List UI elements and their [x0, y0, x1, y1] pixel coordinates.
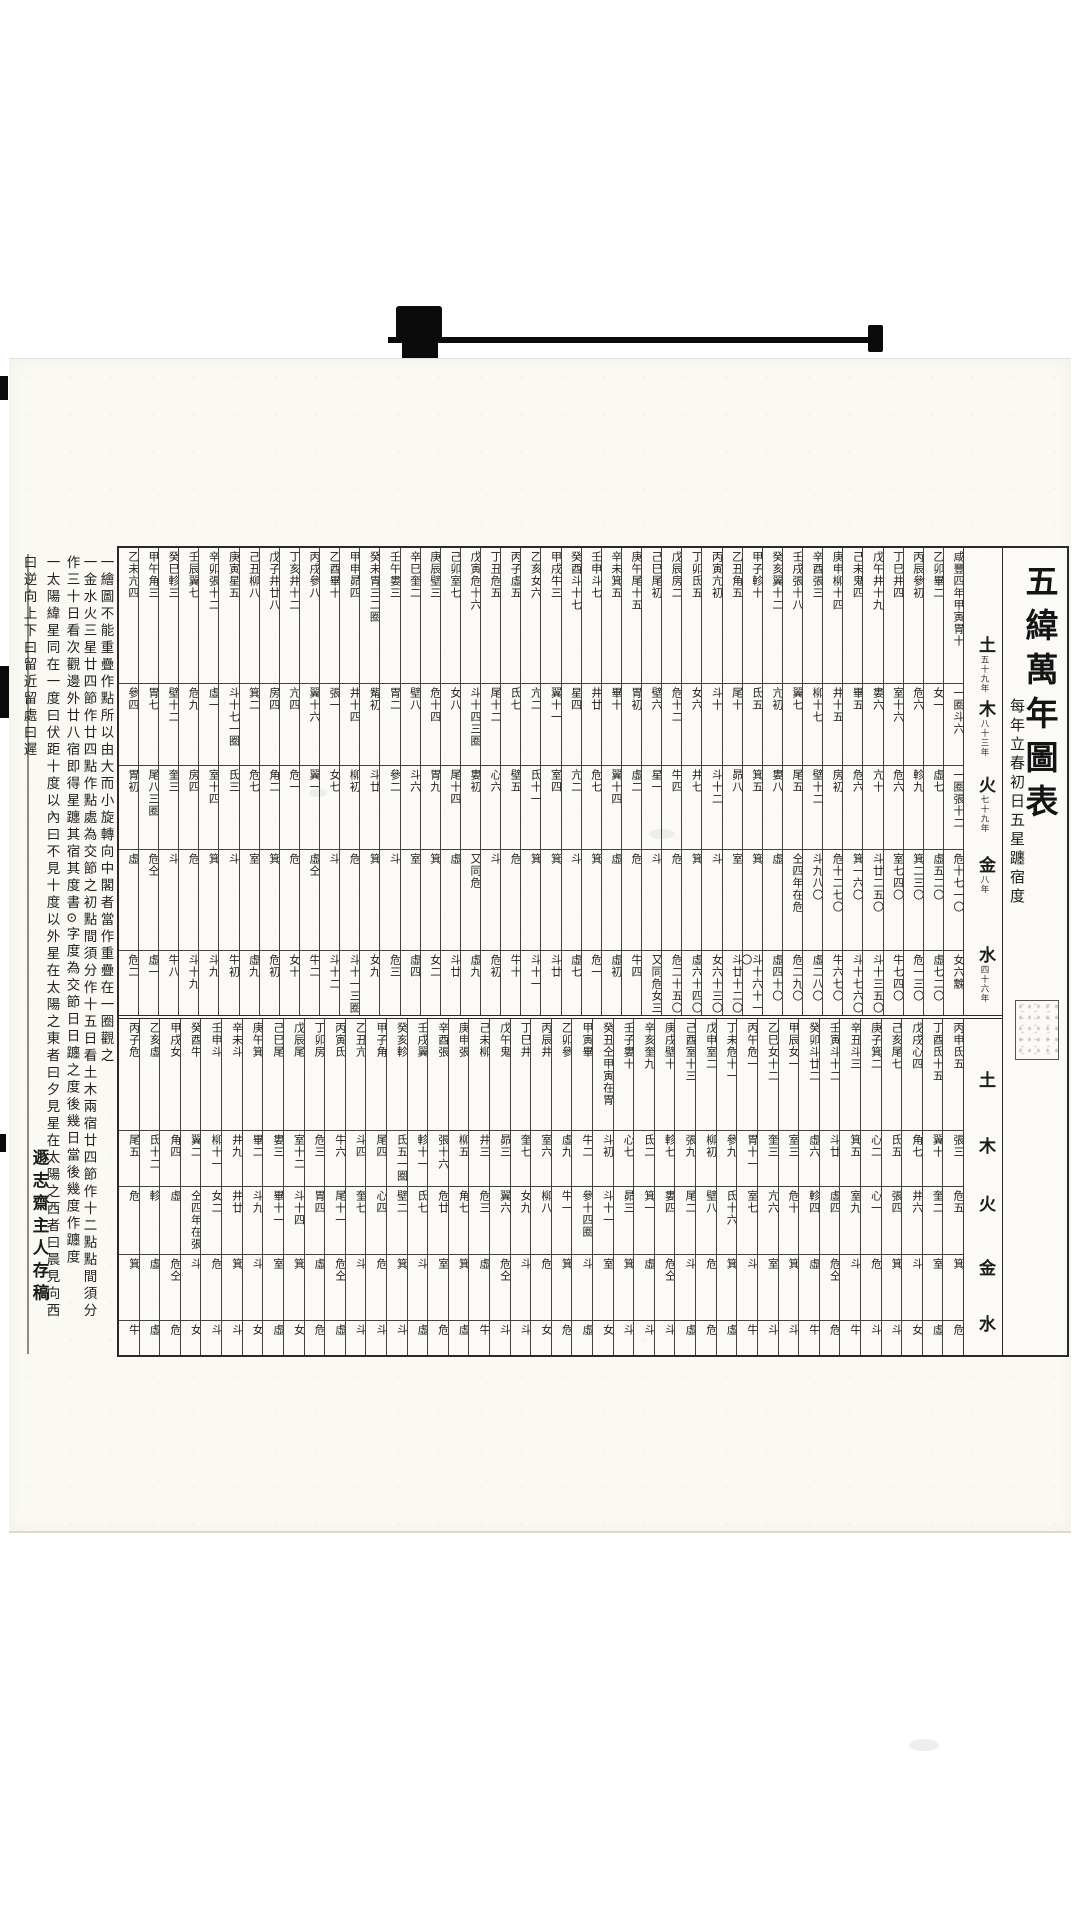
band-lower: 土 木 火 金 水 丙申氐五 張三 危五 箕 危 丁酉氐十五 翼十 奎二 室 虛… — [119, 1015, 1002, 1355]
mercury-value: 牛 — [840, 1320, 860, 1355]
year-column: 壬戌張十八 翼七 尾五 仝四年在危 危二九〇 — [782, 548, 802, 1015]
year-label: 辛未 — [610, 551, 621, 575]
mercury-value: 斗 — [779, 1320, 799, 1355]
year-column: 甲子角 尾四 心四 危 斗 — [365, 1019, 386, 1355]
saturn-value: 張 — [457, 1046, 468, 1058]
saturn-value: 胃三二圈 — [368, 575, 379, 623]
venus-value: 斗 — [675, 1254, 695, 1320]
year-label: 庚戌 — [663, 1022, 674, 1046]
year-column: 丙申氐五 張三 危五 箕 危 — [942, 1019, 963, 1355]
mercury-value: 又同危女三 — [642, 950, 661, 1015]
year-column: 庚午箕 畢二 斗九 斗 女 — [242, 1019, 263, 1355]
mercury-value: 女六䨲 — [944, 950, 963, 1015]
mercury-value: 斗十二 — [320, 950, 339, 1015]
venus-value: 箕 — [387, 1254, 407, 1320]
five-planets-table: 五緯萬年圖表 每年立春初日五星躔宿度 土五十九年 木八十三年 火七十九年 金八年… — [117, 546, 1069, 1357]
venus-value: 斗 — [511, 1254, 531, 1320]
cell-year-saturn: 己未柳 — [469, 1019, 489, 1130]
mercury-value: 虛七二〇 — [924, 950, 943, 1015]
year-label: 乙卯 — [560, 1022, 571, 1046]
mercury-value: 斗 — [614, 1320, 634, 1355]
saturn-value: 氐五 — [690, 575, 701, 599]
venus-value: 危 — [696, 1254, 716, 1320]
mars-value: 危三 — [469, 1186, 489, 1254]
margin-note-1: 一繪圖不能重疊作點所以由大而小旋轉向中閣者當作重疊在一圈觀之 — [99, 555, 113, 1345]
mars-value: 氐三 — [219, 765, 238, 849]
venus-value: 室 — [263, 1254, 283, 1320]
scanner-artifact-left-edge — [0, 1134, 6, 1152]
year-label: 丁酉 — [931, 1022, 942, 1046]
saturn-value: 尾 — [272, 1046, 283, 1058]
jupiter-value: 翼十 — [923, 1130, 943, 1186]
mercury-value: 女九 — [360, 950, 379, 1015]
cell-year-saturn: 丁卯房 — [305, 1019, 325, 1130]
venus-value: 仝四年在危 — [783, 849, 802, 950]
mercury-value: 危 — [428, 1320, 448, 1355]
margin-note-5: 曰逆向上下曰留近留處曰遲 — [22, 555, 36, 815]
mars-value: 胃四 — [305, 1186, 325, 1254]
cell-year-saturn: 丁巳井四 — [884, 548, 903, 683]
jupiter-value: 斗十七一圈 — [219, 683, 238, 765]
year-label: 癸酉 — [189, 1022, 200, 1046]
saturn-value: 張三 — [811, 575, 822, 599]
venus-value: 危 — [179, 849, 198, 950]
planet-label-mercury: 水 — [977, 1315, 994, 1332]
jupiter-value: 氐七 — [501, 683, 520, 765]
mars-value: 婁初 — [461, 765, 480, 849]
scanner-artifact-top-bar — [388, 337, 882, 343]
venus-value: 虛 — [634, 1254, 654, 1320]
cell-year-saturn: 癸未胃三二圈 — [360, 548, 379, 683]
saturn-value: 危 — [128, 1046, 139, 1058]
cell-year-saturn: 乙亥虛 — [140, 1019, 160, 1130]
page-subtitle: 每年立春初日五星躔宿度 — [1006, 698, 1027, 907]
jupiter-value: 畢二 — [243, 1130, 263, 1186]
year-label: 甲子 — [751, 551, 762, 575]
saturn-value: 角三 — [147, 575, 158, 599]
year-label: 壬寅 — [828, 1022, 839, 1046]
mercury-value: 斗 — [201, 1320, 221, 1355]
year-column: 辛未斗 井九 井廿 箕 斗 — [221, 1019, 242, 1355]
planet-name: 土 — [976, 1071, 995, 1088]
venus-value: 斗 — [243, 1254, 263, 1320]
jupiter-value: 斗初 — [593, 1130, 613, 1186]
venus-value: 斗 — [320, 849, 339, 950]
saturn-value: 婁十 — [622, 1046, 633, 1070]
jupiter-value: 柳五 — [449, 1130, 469, 1186]
mercury-value: 女十 — [280, 950, 299, 1015]
mars-value: 室四 — [541, 765, 560, 849]
cell-year-saturn: 己卯室七 — [441, 548, 460, 683]
venus-value: 危 — [280, 849, 299, 950]
saturn-value: 角五 — [731, 575, 742, 599]
mars-value: 角二 — [260, 765, 279, 849]
mercury-value: 女 — [593, 1320, 613, 1355]
venus-value: 危 — [340, 849, 359, 950]
jupiter-value: 尾十 — [723, 683, 742, 765]
jupiter-value: 翼十六 — [300, 683, 319, 765]
year-label: 癸酉 — [570, 551, 581, 575]
cell-year-saturn: 壬子婁十 — [614, 1019, 634, 1130]
planet-label-mercury: 水四十六年 — [977, 946, 994, 1003]
jupiter-value: 張十六 — [428, 1130, 448, 1186]
year-label: 壬戌 — [791, 551, 802, 575]
saturn-value: 昴四 — [348, 575, 359, 599]
mercury-value: 危二十五〇 — [662, 950, 681, 1015]
mercury-value: 斗廿十二〇 — [723, 950, 742, 1015]
venus-value: 箕 — [541, 849, 560, 950]
jupiter-value: 氐十二 — [140, 1130, 160, 1186]
mars-value: 斗十一 — [593, 1186, 613, 1254]
cell-year-saturn: 丁卯氐五 — [682, 548, 701, 683]
venus-value: 斗九八〇 — [803, 849, 822, 950]
jupiter-value: 胃二 — [380, 683, 399, 765]
year-label: 戊子 — [268, 551, 279, 575]
jupiter-value: 亢四 — [280, 683, 299, 765]
jupiter-value: 尾四 — [366, 1130, 386, 1186]
jupiter-value: 牛二 — [572, 1130, 592, 1186]
saturn-value: 危五 — [489, 575, 500, 599]
venus-value: 箕 — [119, 1254, 139, 1320]
cell-year-saturn: 乙未亢四 — [119, 548, 138, 683]
venus-value: 危 — [366, 1254, 386, 1320]
jupiter-value: 婁六 — [863, 683, 882, 765]
mercury-value: 牛初 — [219, 950, 238, 1015]
mars-value: 女二 — [201, 1186, 221, 1254]
mercury-value: 斗十一三圈 — [340, 950, 359, 1015]
year-label: 壬申 — [590, 551, 601, 575]
year-label: 戊辰 — [670, 551, 681, 575]
cell-year-saturn: 丁酉氐十五 — [923, 1019, 943, 1130]
saturn-value: 斗十七 — [570, 575, 581, 611]
mars-value: 仝四年在張 — [181, 1186, 201, 1254]
mercury-value: 虛 — [140, 1320, 160, 1355]
venus-value: 虛五二〇 — [924, 849, 943, 950]
jupiter-value: 虛一 — [199, 683, 218, 765]
jupiter-value: 胃七 — [139, 683, 158, 765]
year-label: 甲辰 — [787, 1022, 798, 1046]
cell-year-saturn: 丙戌參八 — [300, 548, 319, 683]
jupiter-value: 虛九 — [552, 1130, 572, 1186]
year-label: 乙亥 — [529, 551, 540, 575]
venus-value: 危 — [662, 849, 681, 950]
saturn-value: 斗廿二 — [808, 1046, 819, 1082]
mercury-value: 牛 — [469, 1320, 489, 1355]
jupiter-value: 一圈斗六 — [944, 683, 963, 765]
mercury-value: 危二 — [119, 950, 138, 1015]
saturn-value: 畢二 — [932, 575, 943, 599]
saturn-value: 斗十二 — [828, 1046, 839, 1082]
venus-value: 虛 — [763, 849, 782, 950]
venus-value: 箕 — [743, 849, 762, 950]
jupiter-value: 星四 — [562, 683, 581, 765]
year-column: 戊子井廿八 房四 角二 箕 危初 — [259, 548, 279, 1015]
year-label: 乙未 — [127, 551, 138, 575]
venus-value: 箕 — [552, 1254, 572, 1320]
mars-value: 心四 — [366, 1186, 386, 1254]
year-column: 己卯室七 女八 尾十四 虛 斗廿 — [440, 548, 460, 1015]
jupiter-value: 壁十二 — [159, 683, 178, 765]
jupiter-value: 昴三 — [490, 1130, 510, 1186]
mars-value: 斗十二 — [702, 765, 721, 849]
jupiter-value: 壁六 — [642, 683, 661, 765]
mercury-value: 虛 — [923, 1320, 943, 1355]
mercury-value: 虛 — [449, 1320, 469, 1355]
saturn-value: 女一 — [787, 1046, 798, 1070]
saturn-value: 女十二 — [767, 1046, 778, 1082]
jupiter-value: 井十四 — [340, 683, 359, 765]
mars-value: 奎七 — [346, 1186, 366, 1254]
jupiter-value: 壁八 — [401, 683, 420, 765]
venus-value: 箕 — [284, 1254, 304, 1320]
cell-year-saturn: 壬午婁三 — [380, 548, 399, 683]
year-label: 癸未 — [368, 551, 379, 575]
mercury-value: 女 — [284, 1320, 304, 1355]
jupiter-value: 房四 — [260, 683, 279, 765]
saturn-value: 星五 — [228, 575, 239, 599]
mercury-value: 牛七四〇 — [884, 950, 903, 1015]
cell-year-saturn: 癸卯斗廿二 — [799, 1019, 819, 1130]
venus-value: 斗 — [219, 849, 238, 950]
jupiter-value: 室十六 — [884, 683, 903, 765]
year-column: 乙亥女六 亢二 氐十一 箕 斗十一 — [520, 548, 540, 1015]
mars-value: 胃九 — [421, 765, 440, 849]
year-label: 壬子 — [622, 1022, 633, 1046]
mars-value: 角七 — [449, 1186, 469, 1254]
year-column: 丙子危 尾五 危 箕 牛 — [119, 1019, 139, 1355]
mars-value: 斗十四 — [284, 1186, 304, 1254]
year-column: 庚申張 柳五 角七 箕 虛 — [448, 1019, 469, 1355]
cell-year-saturn: 丁未危十一 — [717, 1019, 737, 1130]
cell-year-saturn: 戊辰房二 — [662, 548, 681, 683]
year-column: 戊辰房二 危十二 牛四 危 危二十五〇 — [661, 548, 681, 1015]
mars-value: 房初 — [823, 765, 842, 849]
jupiter-value: 箕五 — [840, 1130, 860, 1186]
venus-value: 危十二七〇 — [823, 849, 842, 950]
planet-label-jupiter: 木 — [977, 1137, 994, 1154]
year-label: 癸亥 — [396, 1022, 407, 1046]
jupiter-value: 翼七 — [783, 683, 802, 765]
year-column: 丙寅亢初 斗十 斗十二 斗 女六十三〇 — [701, 548, 721, 1015]
year-label: 辛酉 — [437, 1022, 448, 1046]
year-column: 丁未危十一 參九 氐十六 箕 虛 — [716, 1019, 737, 1355]
planet-label-saturn: 土 — [977, 1071, 994, 1088]
mercury-value: 斗 — [346, 1320, 366, 1355]
saturn-value: 軫十 — [751, 575, 762, 599]
venus-value: 室 — [240, 849, 259, 950]
year-label: 壬辰 — [187, 551, 198, 575]
year-label: 乙丑 — [354, 1022, 365, 1046]
mercury-value: 女 — [243, 1320, 263, 1355]
year-column: 癸亥軫 氐五一圈 壁二 箕 斗 — [386, 1019, 407, 1355]
year-label: 乙酉 — [328, 551, 339, 575]
mars-value: 亢十 — [863, 765, 882, 849]
jupiter-value: 張九 — [675, 1130, 695, 1186]
venus-value: 虛 — [441, 849, 460, 950]
cell-year-saturn: 壬寅斗十二 — [820, 1019, 840, 1130]
year-label: 丁巳 — [519, 1022, 530, 1046]
year-label: 丁未 — [725, 1022, 736, 1046]
mercury-value: 斗 — [758, 1320, 778, 1355]
cell-year-saturn: 甲子軫十 — [743, 548, 762, 683]
author-signature: 遯志齋主人存稿 — [27, 1149, 51, 1307]
mars-value: 壁二 — [387, 1186, 407, 1254]
mercury-value: 女 — [181, 1320, 201, 1355]
cell-year-saturn: 戊寅危十六 — [461, 548, 480, 683]
saturn-value: 井四 — [892, 575, 903, 599]
year-column: 戊辰尾 室十二 斗十四 箕 女 — [283, 1019, 304, 1355]
margin-note-3: 作三十日看次觀邊外廿八宿即得星躔其宿其度書⊙字度為交節日日躔之度後幾日當後幾度作… — [65, 555, 79, 1345]
mars-value: 婁四 — [655, 1186, 675, 1254]
mars-value: 斗九 — [243, 1186, 263, 1254]
year-label: 庚午 — [630, 551, 641, 575]
jupiter-value: 氐五 — [882, 1130, 902, 1186]
mars-value: 尾十四 — [441, 765, 460, 849]
year-label: 己丑 — [248, 551, 259, 575]
year-column: 癸亥翼十二 亢初 婁八 虛 虛四十〇 — [762, 548, 782, 1015]
mercury-value: 虛六十四〇 — [682, 950, 701, 1015]
jupiter-value: 氐五一圈 — [387, 1130, 407, 1186]
saturn-value: 箕五 — [610, 575, 621, 599]
saturn-value: 室二 — [705, 1046, 716, 1070]
cell-year-saturn: 壬申斗 — [201, 1019, 221, 1130]
mars-value: 軫九 — [904, 765, 923, 849]
cell-year-saturn: 乙卯畢二 — [924, 548, 943, 683]
jupiter-value: 井十五 — [823, 683, 842, 765]
venus-value: 箕 — [449, 1254, 469, 1320]
year-column: 辛卯張十二 虛一 室十四 箕 斗九 — [198, 548, 218, 1015]
saturn-value: 奎九 — [643, 1046, 654, 1070]
venus-value: 危 — [861, 1254, 881, 1320]
mercury-value: 虛四 — [401, 950, 420, 1015]
mercury-value: 斗 — [366, 1320, 386, 1355]
venus-value: 危仝 — [490, 1254, 510, 1320]
mercury-value: 斗九 — [199, 950, 218, 1015]
saturn-value: 奎二 — [409, 575, 420, 599]
venus-value: 箕 — [882, 1254, 902, 1320]
mars-value: 奎二 — [923, 1186, 943, 1254]
saturn-value: 室七 — [449, 575, 460, 599]
saturn-value: 參 — [560, 1046, 571, 1058]
mars-value: 柳八 — [531, 1186, 551, 1254]
planet-label-venus: 金 — [977, 1259, 994, 1276]
mercury-value: 危 — [552, 1320, 572, 1355]
mars-value: 尾五 — [783, 765, 802, 849]
mars-value: 室十四 — [199, 765, 218, 849]
saturn-value: 危十一 — [725, 1046, 736, 1082]
planet-name: 木 — [976, 1137, 995, 1154]
saturn-value: 女 — [169, 1046, 180, 1058]
scanner-artifact-left-edge — [0, 376, 8, 400]
cell-year-saturn: 戊申室二 — [696, 1019, 716, 1130]
planet-name: 木 — [976, 700, 995, 717]
year-column: 壬寅斗十二 斗廿 虛四 危仝 危 — [819, 1019, 840, 1355]
saturn-value: 角 — [375, 1046, 386, 1058]
mercury-value: 斗廿 — [541, 950, 560, 1015]
year-label: 戊戌 — [911, 1022, 922, 1046]
year-label: 己未 — [851, 551, 862, 575]
venus-value: 室 — [758, 1254, 778, 1320]
mercury-value: 牛十 — [501, 950, 520, 1015]
jupiter-value: 柳初 — [696, 1130, 716, 1186]
jupiter-value: 張三 — [943, 1130, 963, 1186]
year-label: 己亥 — [890, 1022, 901, 1046]
cell-year-saturn: 丁亥井十二 — [280, 548, 299, 683]
year-label: 丙子 — [509, 551, 520, 575]
planet-label-column-upper: 土五十九年 木八十三年 火七十九年 金八年 水四十六年 — [963, 548, 1002, 1015]
mercury-value: 斗 — [634, 1320, 654, 1355]
year-column: 乙未亢四 參四 胃初 虛 危二 — [119, 548, 138, 1015]
cell-year-saturn: 丁丑危五 — [481, 548, 500, 683]
year-label: 丙寅 — [334, 1022, 345, 1046]
saturn-value: 女六 — [529, 575, 540, 599]
mars-value: 一圈張十二 — [944, 765, 963, 849]
band-upper: 土五十九年 木八十三年 火七十九年 金八年 水四十六年 咸豐四年甲寅胃十 一圈斗… — [119, 548, 1002, 1015]
venus-value: 斗 — [481, 849, 500, 950]
mercury-value: 危 — [305, 1320, 325, 1355]
venus-value: 箕 — [199, 849, 218, 950]
saturn-value: 尾 — [293, 1046, 304, 1058]
year-label: 丙子 — [128, 1022, 139, 1046]
venus-value: 危仝 — [160, 1254, 180, 1320]
year-column: 壬申斗 柳十一 女二 危 斗 — [200, 1019, 221, 1355]
year-column: 丁卯房 危三 胃四 虛 危 — [304, 1019, 325, 1355]
year-column: 癸未胃三二圈 觜初 斗廿 箕 女九 — [359, 548, 379, 1015]
venus-value: 箕 — [360, 849, 379, 950]
venus-value: 虛仝 — [300, 849, 319, 950]
mars-value: 虛二 — [622, 765, 641, 849]
saturn-value: 鬼 — [499, 1046, 510, 1058]
year-column: 乙卯參 虛九 牛一 箕 危 — [551, 1019, 572, 1355]
venus-value: 斗廿二五〇 — [863, 849, 882, 950]
year-label: 甲戌 — [550, 551, 561, 575]
venus-value: 斗 — [408, 1254, 428, 1320]
saturn-value: 亢 — [354, 1046, 365, 1058]
year-column: 己未鬼四 畢五 危六 箕一六〇 斗十七六〇 — [842, 548, 862, 1015]
jupiter-value: 女六 — [682, 683, 701, 765]
year-column: 戊午鬼 昴三 翼六 危仝 斗 — [489, 1019, 510, 1355]
year-column: 壬午婁三 胃二 參二 斗 危三 — [379, 548, 399, 1015]
mercury-value: 斗 — [882, 1320, 902, 1355]
jupiter-value: 軫十一 — [408, 1130, 428, 1186]
planet-period: 五十九年 — [980, 655, 990, 693]
planet-period: 八十三年 — [980, 719, 990, 757]
mercury-value: 虛七 — [562, 950, 581, 1015]
mercury-value: 虛 — [717, 1320, 737, 1355]
mars-value: 斗廿 — [360, 765, 379, 849]
cell-year-saturn: 甲戌女 — [160, 1019, 180, 1130]
year-label: 丁丑 — [489, 551, 500, 575]
mercury-value: 斗十三五〇 — [863, 950, 882, 1015]
year-label: 乙卯 — [932, 551, 943, 575]
mars-value: 參十四圈 — [572, 1186, 592, 1254]
saturn-value: 井廿八 — [268, 575, 279, 611]
jupiter-value: 斗十四三圈 — [461, 683, 480, 765]
cell-year-saturn: 甲辰女一 — [779, 1019, 799, 1130]
saturn-value: 虛 — [148, 1046, 159, 1058]
venus-value: 斗 — [902, 1254, 922, 1320]
planet-name: 土 — [976, 636, 995, 653]
mars-value: 尾二 — [675, 1186, 695, 1254]
venus-value: 虛 — [799, 1254, 819, 1320]
year-column: 辛酉張三 柳十七 壁十二 斗九八〇 虛二八〇 — [802, 548, 822, 1015]
mars-value: 斗六 — [401, 765, 420, 849]
mercury-value: 危 — [696, 1320, 716, 1355]
jupiter-value: 軫七 — [655, 1130, 675, 1186]
venus-value: 危仝 — [655, 1254, 675, 1320]
mars-value: 牛四 — [662, 765, 681, 849]
saturn-value: 井十二 — [288, 575, 299, 611]
